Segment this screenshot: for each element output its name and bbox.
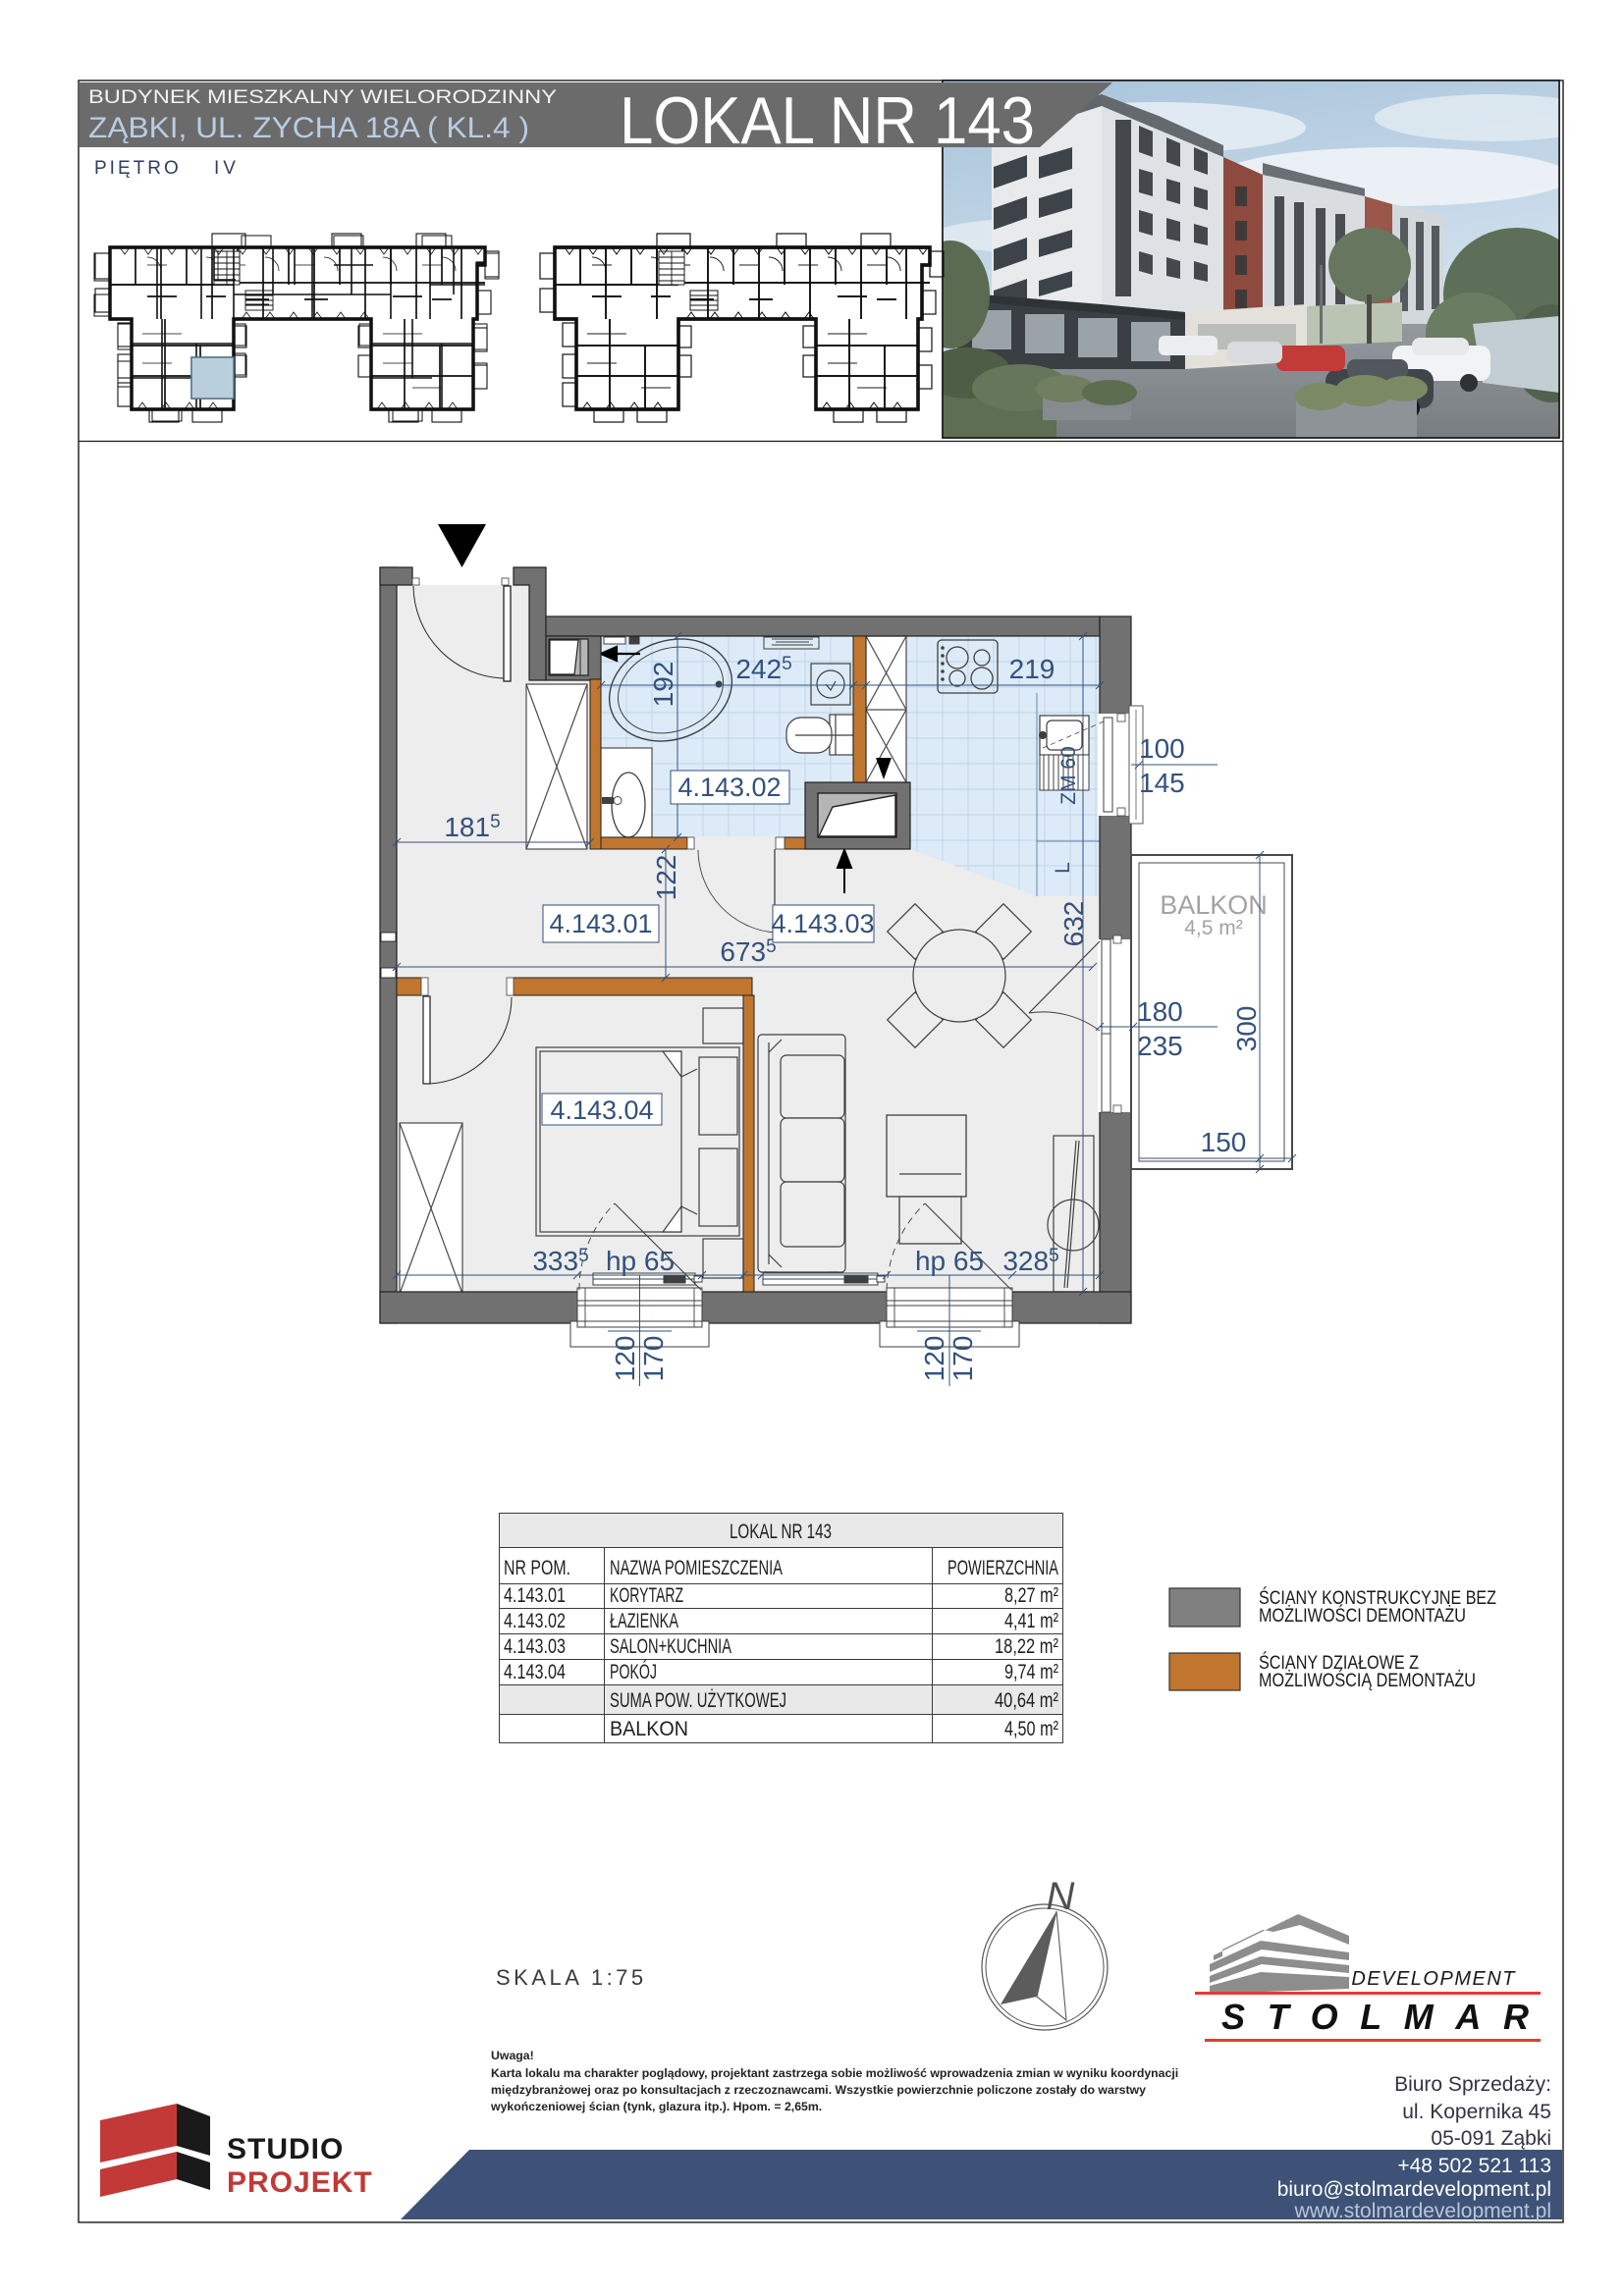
svg-text:100: 100: [1139, 733, 1185, 764]
svg-text:IV: IV: [214, 158, 240, 179]
svg-text:150: 150: [1201, 1127, 1247, 1157]
svg-text:NAZWA POMIESZCZENIA: NAZWA POMIESZCZENIA: [610, 1557, 783, 1579]
svg-text:SKALA 1:75: SKALA 1:75: [496, 1965, 647, 1990]
svg-text:MOŻLIWOŚCIĄ DEMONTAŻU: MOŻLIWOŚCIĄ DEMONTAŻU: [1259, 1670, 1476, 1691]
svg-text:L: L: [1052, 862, 1074, 874]
svg-text:120: 120: [610, 1336, 640, 1382]
svg-text:40,64 m²: 40,64 m²: [995, 1689, 1058, 1712]
svg-text:NR POM.: NR POM.: [504, 1557, 570, 1579]
svg-text:192: 192: [648, 662, 678, 708]
svg-text:N: N: [1047, 1875, 1075, 1918]
svg-text:4,5 m²: 4,5 m²: [1184, 917, 1243, 939]
svg-text:4.143.02: 4.143.02: [677, 773, 781, 802]
svg-text:LOKAL NR 143: LOKAL NR 143: [730, 1521, 832, 1543]
svg-text:4,50 m²: 4,50 m²: [1004, 1718, 1058, 1740]
svg-text:4.143.02: 4.143.02: [504, 1610, 566, 1632]
svg-text:POKÓJ: POKÓJ: [610, 1661, 657, 1683]
svg-text:hp 65: hp 65: [606, 1246, 675, 1276]
svg-text:235: 235: [1137, 1031, 1183, 1061]
svg-text:170: 170: [638, 1336, 669, 1382]
svg-text:PROJEKT: PROJEKT: [227, 2166, 373, 2199]
svg-text:STUDIO: STUDIO: [227, 2133, 344, 2165]
svg-text:SALON+KUCHNIA: SALON+KUCHNIA: [610, 1635, 731, 1658]
svg-text:05-091 Ząbki: 05-091 Ząbki: [1431, 2127, 1551, 2150]
svg-text:18,22 m²: 18,22 m²: [995, 1635, 1058, 1658]
svg-text:biuro@stolmardevelopment.pl: biuro@stolmardevelopment.pl: [1277, 2178, 1551, 2201]
svg-text:BALKON: BALKON: [610, 1718, 688, 1740]
svg-text:300: 300: [1231, 1006, 1262, 1052]
svg-text:8,27 m²: 8,27 m²: [1004, 1584, 1058, 1607]
svg-text:4.143.03: 4.143.03: [504, 1635, 566, 1658]
svg-text:Uwaga!: Uwaga!: [491, 2049, 534, 2062]
svg-text:4.143.01: 4.143.01: [504, 1584, 566, 1607]
svg-text:ZM 60: ZM 60: [1057, 746, 1080, 805]
svg-text:Biuro Sprzedaży:: Biuro Sprzedaży:: [1394, 2073, 1551, 2096]
svg-text:4.143.04: 4.143.04: [504, 1661, 566, 1683]
svg-text:4.143.03: 4.143.03: [771, 909, 874, 938]
svg-text:ŁAZIENKA: ŁAZIENKA: [610, 1610, 678, 1632]
svg-text:180: 180: [1137, 996, 1183, 1027]
svg-text:Karta lokalu ma charakter pogl: Karta lokalu ma charakter poglądowy, pro…: [491, 2066, 1178, 2080]
svg-text:SUMA POW. UŻYTKOWEJ: SUMA POW. UŻYTKOWEJ: [610, 1689, 786, 1712]
svg-text:POWIERZCHNIA: POWIERZCHNIA: [947, 1557, 1058, 1579]
svg-text:219: 219: [1009, 654, 1056, 684]
svg-text:632: 632: [1058, 901, 1089, 947]
svg-text:LOKAL NR 143: LOKAL NR 143: [620, 83, 1035, 158]
svg-text:BALKON: BALKON: [1160, 890, 1268, 920]
svg-text:145: 145: [1139, 768, 1185, 798]
svg-text:MOŻLIWOŚCI DEMONTAŻU: MOŻLIWOŚCI DEMONTAŻU: [1259, 1605, 1466, 1627]
svg-text:KORYTARZ: KORYTARZ: [610, 1584, 683, 1607]
svg-text:ZĄBKI, UL. ZYCHA 18A ( KL.4 ): ZĄBKI, UL. ZYCHA 18A ( KL.4 ): [88, 112, 529, 144]
svg-text:120: 120: [919, 1336, 949, 1382]
svg-text:wykończeniowej ścian (tynk, gl: wykończeniowej ścian (tynk, glazura itp.…: [490, 2100, 822, 2113]
svg-text:4.143.04: 4.143.04: [550, 1095, 653, 1125]
svg-text:170: 170: [947, 1336, 978, 1382]
svg-text:międzybranżowej oraz po konsul: międzybranżowej oraz po konsultacjach z …: [491, 2083, 1146, 2097]
svg-text:ul. Kopernika 45: ul. Kopernika 45: [1402, 2101, 1551, 2123]
svg-text:hp 65: hp 65: [915, 1246, 984, 1276]
svg-text:DEVELOPMENT: DEVELOPMENT: [1351, 1968, 1516, 1990]
svg-text:122: 122: [651, 855, 681, 901]
svg-text:BUDYNEK MIESZKALNY WIELORODZIN: BUDYNEK MIESZKALNY WIELORODZINNY: [88, 87, 557, 108]
svg-text:www.stolmardevelopment.pl: www.stolmardevelopment.pl: [1294, 2200, 1551, 2222]
svg-text:9,74 m²: 9,74 m²: [1004, 1661, 1058, 1683]
svg-text:4.143.01: 4.143.01: [549, 909, 652, 938]
svg-text:4,41 m²: 4,41 m²: [1004, 1610, 1058, 1632]
svg-text:PIĘTRO: PIĘTRO: [94, 158, 182, 179]
svg-text:+48 502 521 113: +48 502 521 113: [1397, 2155, 1551, 2177]
